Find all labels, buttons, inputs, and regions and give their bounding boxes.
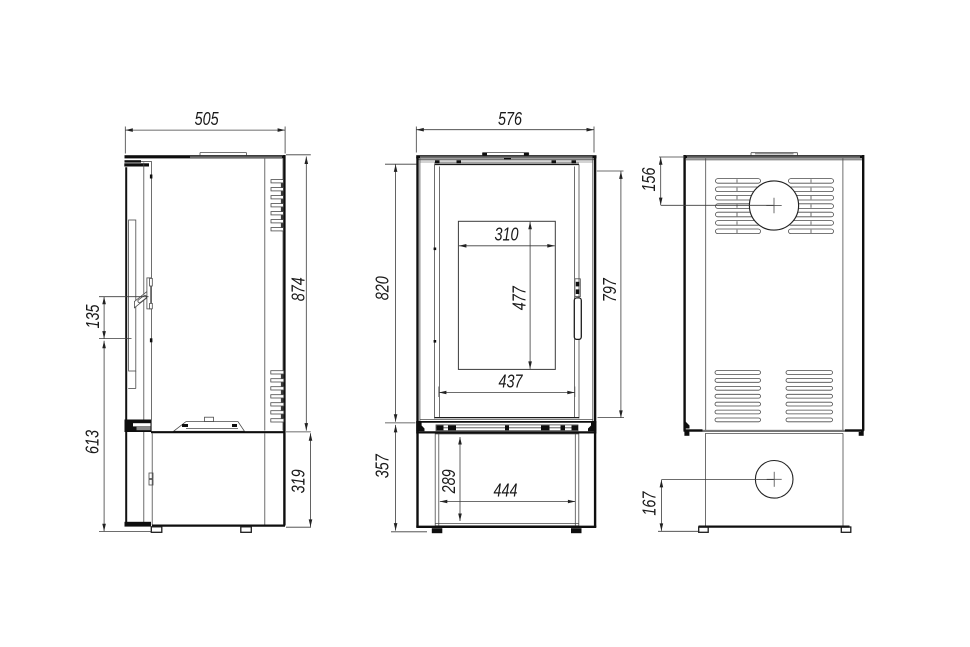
svg-text:319: 319 <box>287 469 308 493</box>
svg-text:289: 289 <box>438 469 459 494</box>
svg-text:357: 357 <box>371 454 392 479</box>
svg-text:576: 576 <box>498 108 523 129</box>
svg-text:167: 167 <box>639 491 660 516</box>
svg-text:874: 874 <box>288 277 309 301</box>
svg-text:135: 135 <box>82 304 103 329</box>
svg-text:797: 797 <box>599 278 620 303</box>
svg-text:505: 505 <box>195 108 220 129</box>
svg-text:310: 310 <box>495 224 520 245</box>
svg-text:444: 444 <box>494 480 518 501</box>
svg-text:437: 437 <box>499 371 524 392</box>
svg-text:613: 613 <box>82 429 103 454</box>
svg-text:477: 477 <box>509 286 530 311</box>
svg-text:820: 820 <box>372 276 393 301</box>
svg-text:156: 156 <box>638 167 659 192</box>
